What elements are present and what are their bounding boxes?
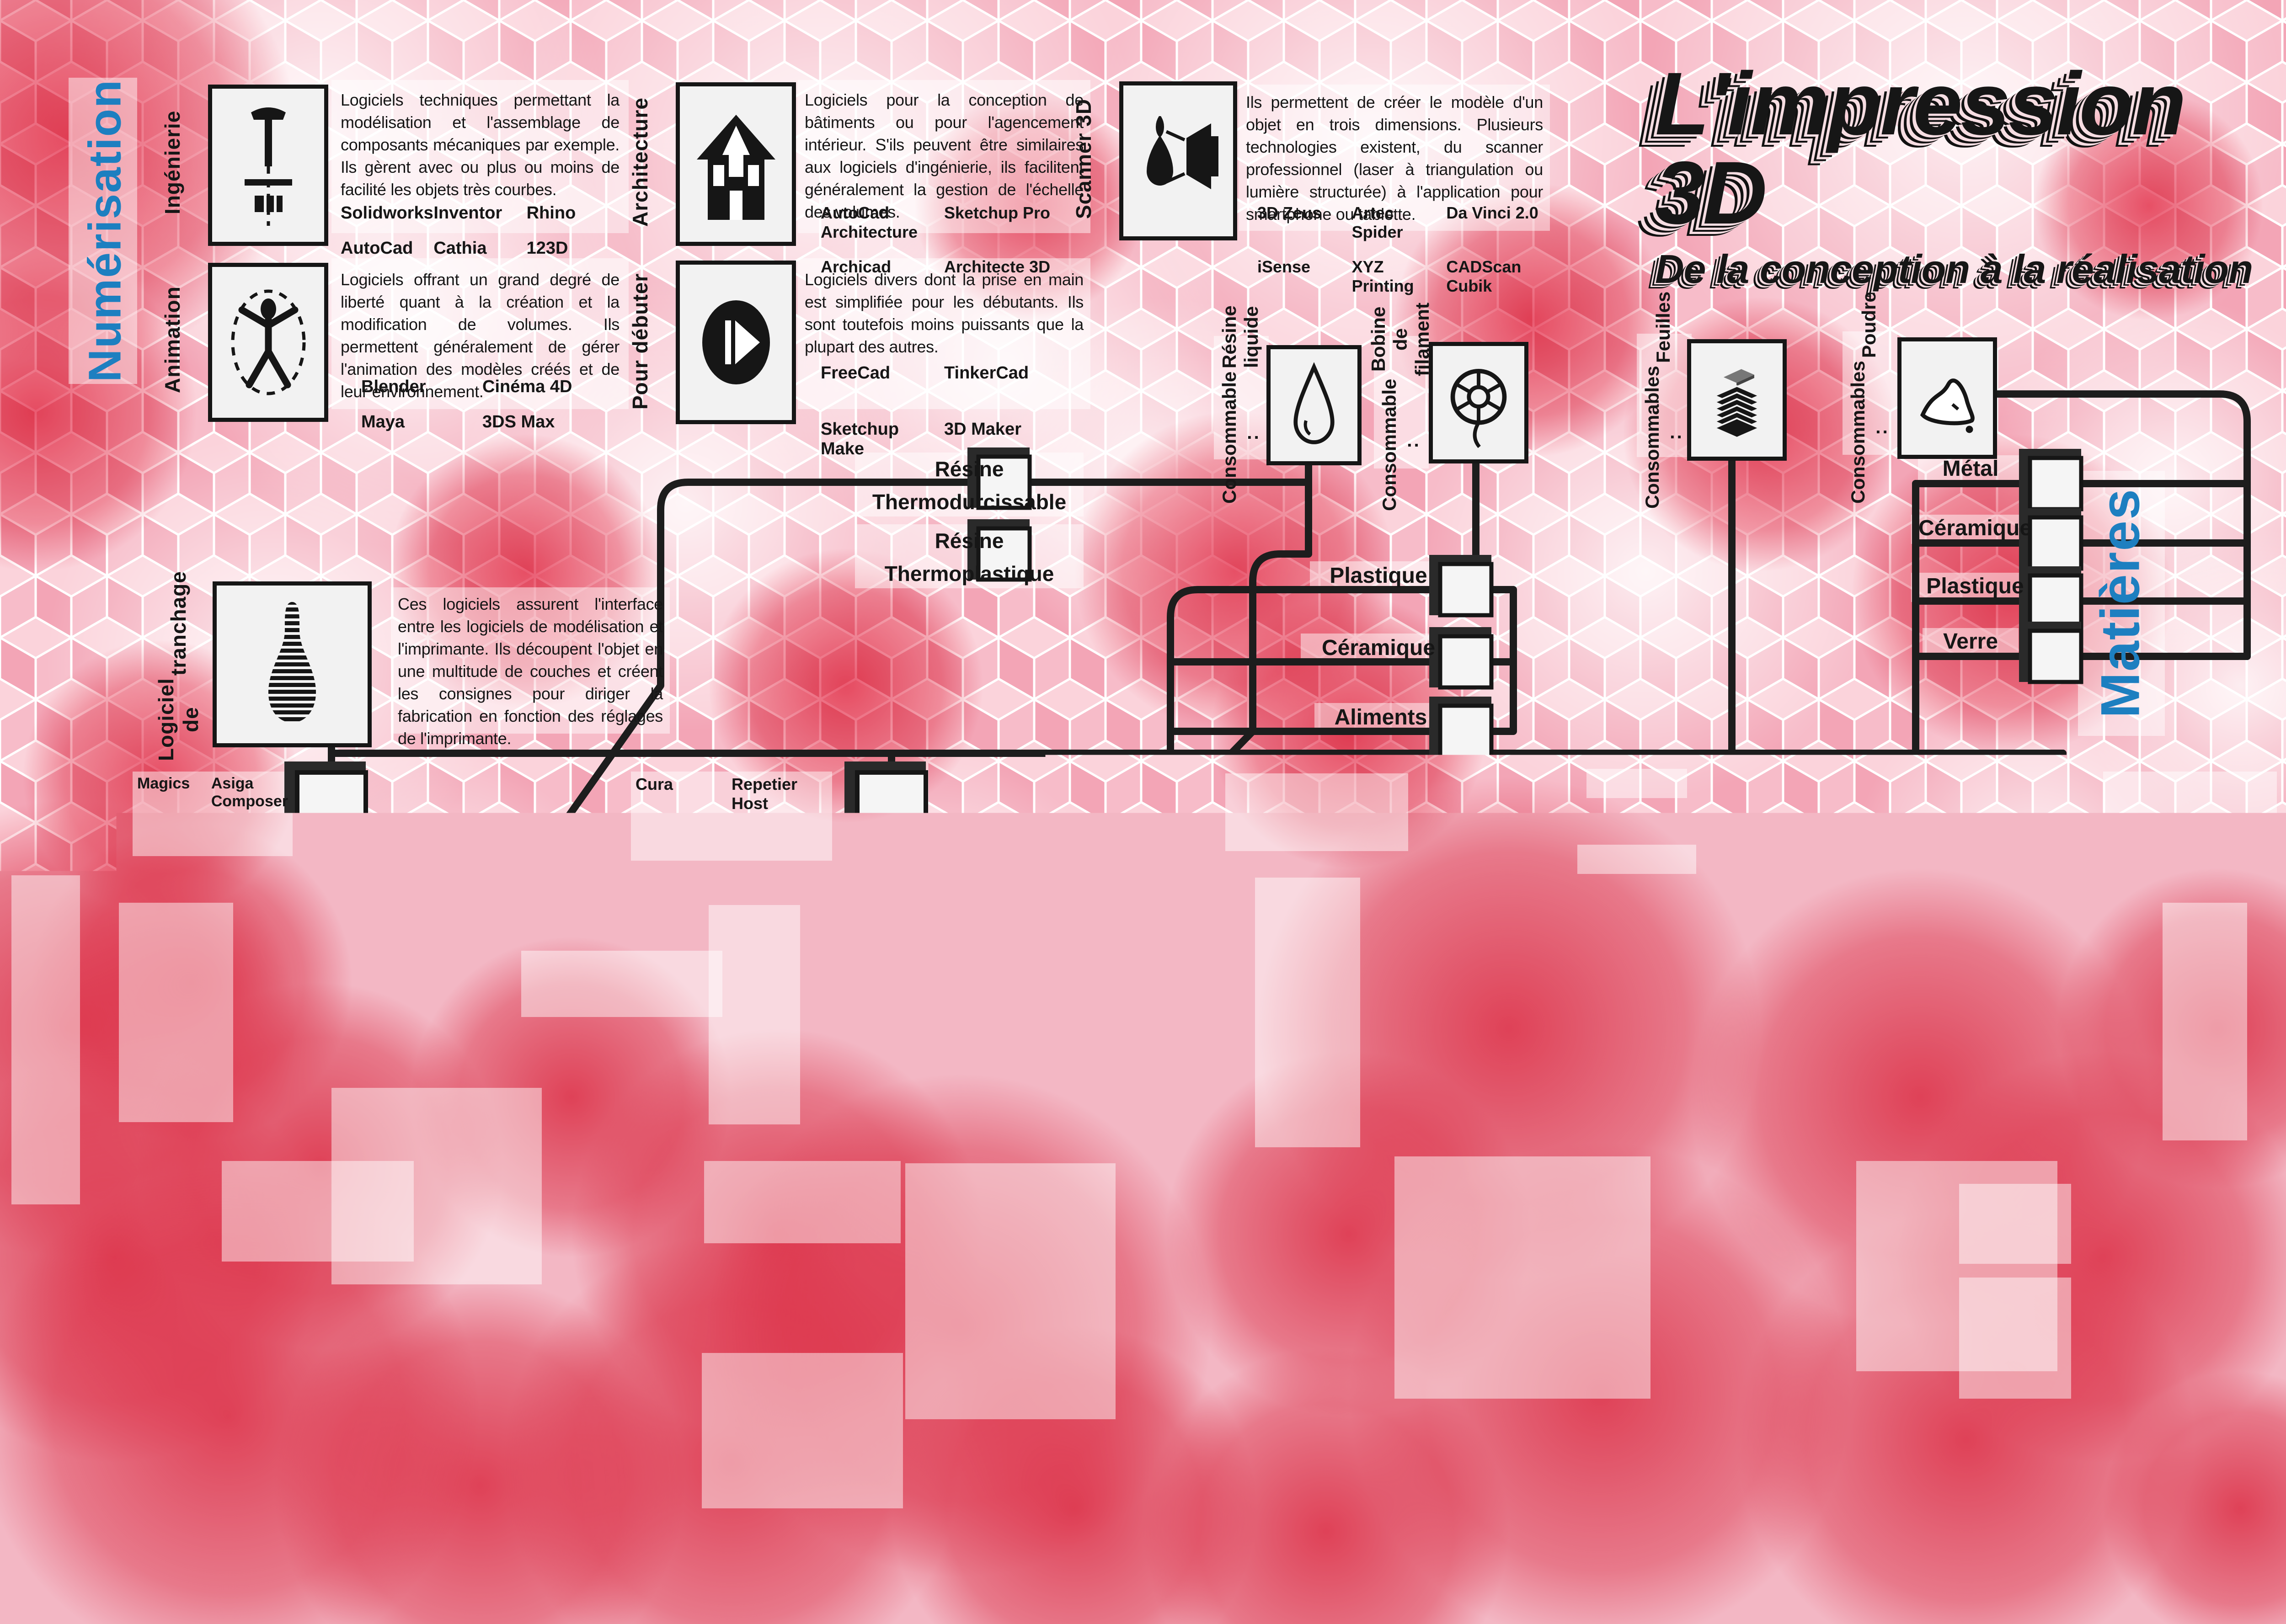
program: Sketchup Make bbox=[821, 420, 944, 459]
program: 123D bbox=[527, 239, 620, 258]
dmf-process-label: EXTRUSION bbox=[956, 1168, 1093, 1195]
svg-text:a²: a² bbox=[1828, 1376, 1840, 1392]
category-label-animation: Animation bbox=[158, 264, 187, 415]
ebeam-label: E-Beam bbox=[2121, 1287, 2149, 1387]
program: Da Vinci 2.0 bbox=[1446, 203, 1541, 242]
polyjet-label: Polyjet bbox=[137, 1163, 165, 1268]
dmf-description: L'objet est formé grâce à une buse se dé… bbox=[910, 1200, 1111, 1446]
usage-car-sla bbox=[135, 1319, 251, 1419]
car-icon bbox=[1974, 1421, 2055, 1490]
plane-icon bbox=[259, 1465, 341, 1533]
usage-chair-sla bbox=[300, 1311, 416, 1418]
category-label-architecture: Architecture bbox=[625, 85, 655, 240]
consumable-label-poudre: Consommables :Poudre bbox=[1844, 334, 1894, 462]
dmf-software: CuraRepetier Host ReplicatorGPronterface… bbox=[636, 775, 828, 880]
fsl-software: Magics Phenix processing Fichiers .stl, … bbox=[2108, 775, 2272, 873]
material-metal: Métal bbox=[1918, 456, 2023, 481]
feuilles-box bbox=[1687, 339, 1787, 461]
program: Artec Spider bbox=[1352, 203, 1447, 242]
material-plastique-lds: Plastique bbox=[1577, 846, 1696, 871]
ingenierie-programs: SolidworksInventorRhino AutoCadCathia123… bbox=[341, 203, 620, 258]
usage-flask-sla bbox=[359, 1454, 465, 1559]
program: XYZ Printing bbox=[1352, 257, 1447, 296]
program: Inventor bbox=[433, 203, 526, 223]
credits-line: Lucile LAMIRAND, Noemie POIREAU, Merve P… bbox=[1500, 1590, 2268, 1618]
program: AutoCad Architecture bbox=[821, 203, 944, 242]
section-label-technologies: Technologies bbox=[14, 878, 75, 1202]
material-plastique-mid: Plastique bbox=[1317, 563, 1440, 588]
sla-software: MagicsAsiga Composer PreFormMach3 Fichie… bbox=[137, 775, 288, 876]
animation-programs: BlenderCinéma 4D Maya3DS Max bbox=[361, 377, 604, 432]
consumable-label-filament: Consommable :Bobine de filament bbox=[1375, 338, 1426, 475]
play-icon bbox=[690, 274, 782, 411]
material-aliments-mid: Aliments bbox=[1319, 705, 1442, 730]
scanner3d-box bbox=[1119, 81, 1237, 240]
tools-icon bbox=[640, 1435, 717, 1503]
material-verre: Verre bbox=[1923, 629, 2019, 654]
bobine-filament-box bbox=[1429, 342, 1528, 463]
chair-icon bbox=[318, 1328, 398, 1401]
usage-house-lds bbox=[1394, 1433, 1510, 1535]
resine-liquide-box bbox=[1266, 345, 1362, 465]
material-papier: Papier bbox=[1586, 770, 1687, 795]
section-label-usages: Usages bbox=[1138, 1337, 1200, 1506]
category-label-pour-debuter: Pour débuter bbox=[625, 261, 655, 421]
engineering-icon bbox=[223, 97, 314, 234]
category-label-ingenierie: Ingénierie bbox=[158, 87, 187, 238]
poster-title-block: L'impression 3D De la conception à la ré… bbox=[1655, 59, 2263, 293]
house-icon bbox=[690, 96, 782, 233]
usage-chair-dmf bbox=[818, 1407, 925, 1515]
dmf-speed-cube: 70 mm/s bbox=[1070, 936, 1163, 1049]
fsl-label: FSL Frittage Sélectif par Laser bbox=[2165, 903, 2252, 1140]
program: Cathia bbox=[433, 239, 526, 258]
usage-flask-lds bbox=[1533, 1486, 1641, 1588]
powder-pile-icon bbox=[1913, 349, 1982, 447]
architecture-box bbox=[676, 82, 796, 246]
program: FreeCad bbox=[821, 363, 944, 383]
program: 3D Zeus bbox=[1257, 203, 1352, 242]
dmf-label: DMF Dépôt de Matière Fondue bbox=[711, 907, 802, 1118]
scanner3d-programs: 3D ZeusArtec SpiderDa Vinci 2.0 iSenseXY… bbox=[1257, 203, 1541, 296]
flask-icon bbox=[374, 1470, 451, 1543]
fsl-layer-cube: 0,2 mm bbox=[1842, 1042, 1930, 1142]
polyjet-text: La résine est projetée en goutelettes su… bbox=[229, 1166, 409, 1252]
flask-icon bbox=[864, 1519, 937, 1588]
usage-flask-dmf bbox=[848, 1504, 954, 1603]
chair-icon bbox=[833, 1426, 910, 1496]
program: Rhino bbox=[527, 203, 620, 223]
program: CADScan Cubik bbox=[1446, 257, 1541, 296]
tranchage-description: Ces logiciels assurent l'interface entre… bbox=[398, 593, 663, 750]
usage-retort-fsl: a² bbox=[1778, 1323, 1887, 1427]
lds-speed-cube: ? bbox=[1645, 1015, 1733, 1124]
fsl-volume-cube: 2400mmx 2200mmx 2400mm bbox=[1935, 1037, 2060, 1168]
pour-debuter-description: Logiciels divers dont la prise en main e… bbox=[805, 269, 1084, 358]
program: Cinéma 4D bbox=[482, 377, 604, 397]
program: TinkerCad bbox=[944, 363, 1068, 383]
architecture-programs: AutoCad ArchitectureSketchup Pro Archica… bbox=[821, 203, 1068, 277]
house-small-icon bbox=[719, 1510, 792, 1574]
drop-icon bbox=[1282, 357, 1346, 453]
sla-speed-cube: 25 mm/s bbox=[375, 948, 470, 1060]
section-label-matieres: Matières bbox=[2080, 473, 2160, 734]
sliced-vase-icon bbox=[233, 594, 352, 735]
consumable-label-feuilles: Consommables :Feuilles bbox=[1638, 336, 1688, 464]
chair-icon bbox=[1525, 1401, 1602, 1472]
pour-debuter-box bbox=[676, 261, 796, 424]
material-resine-thermodurcissable: RésineThermodurcissable bbox=[860, 456, 1079, 515]
usage-house-dmf bbox=[704, 1495, 808, 1590]
pour-debuter-programs: FreeCadTinkerCad Sketchup Make3D Maker bbox=[821, 363, 1068, 459]
page-subtitle: De la conception à la réalisation bbox=[1655, 246, 2263, 293]
lds-machine-icon bbox=[1335, 871, 1655, 1099]
retort-flask-icon: a² bbox=[1794, 1340, 1872, 1411]
program: 3D Maker bbox=[944, 420, 1068, 459]
frittage-laser-text: Variante spécifique pour l'impression de… bbox=[1962, 1187, 2068, 1267]
category-label-scanner3d: Scanner 3D bbox=[1069, 83, 1098, 234]
program: Sketchup Pro bbox=[944, 203, 1068, 242]
program: AutoCad bbox=[341, 239, 433, 258]
ingenierie-box bbox=[208, 85, 328, 246]
sheet-stack-icon bbox=[1703, 351, 1771, 449]
animation-figure-icon bbox=[223, 276, 314, 409]
poster-canvas: L'impression 3D De la conception à la ré… bbox=[0, 0, 2286, 1624]
program: iSense bbox=[1257, 257, 1352, 296]
tranchage-box bbox=[213, 581, 372, 747]
program: Solidworks bbox=[341, 203, 433, 223]
tranchage-label: Logiciel de tranchage bbox=[151, 591, 206, 741]
material-plastique-right: Plastique bbox=[1911, 574, 2039, 599]
consumable-label-resine: Consommable :Résine liquide bbox=[1215, 341, 1266, 469]
usage-car-fsl bbox=[1957, 1404, 2072, 1507]
ingenierie-description: Logiciels techniques permettant la modél… bbox=[341, 89, 620, 201]
stylo3d-label: Stylo 3D bbox=[609, 1168, 636, 1268]
car-icon bbox=[153, 1335, 233, 1403]
usage-chair-lds bbox=[1510, 1384, 1618, 1488]
flask-icon bbox=[1550, 1502, 1625, 1572]
usage-plane-sla bbox=[239, 1448, 360, 1550]
scanner-icon bbox=[1132, 92, 1224, 229]
section-label-numerisation: Numérisation bbox=[75, 80, 135, 382]
program: 3DS Max bbox=[482, 412, 604, 432]
house-small-icon bbox=[1412, 1450, 1493, 1518]
lds-software: MCor SliceIt Fichiers .stl, .obj, .vrml bbox=[1230, 777, 1404, 831]
material-ceramique-right: Céramique bbox=[1911, 516, 2039, 541]
lds-files: Fichiers .stl, .obj, .vrml bbox=[1230, 805, 1404, 831]
program: Maya bbox=[361, 412, 482, 432]
program: Blender bbox=[361, 377, 482, 397]
poudre-box bbox=[1897, 337, 1997, 459]
filament-spool-icon bbox=[1444, 354, 1513, 452]
material-ceramique-mid: Céramique bbox=[1308, 635, 1449, 660]
material-resine-thermoplastique: RésineThermoplastique bbox=[860, 528, 1079, 587]
frittage-laser-label: Frittage LaserDirect de Métal bbox=[2121, 1159, 2181, 1287]
stylo3d-text: La matière fondue refroidi rapidement po… bbox=[710, 1166, 897, 1231]
lds-layer-cube: 0,1 mm bbox=[1237, 1028, 1327, 1130]
dmf-layer-cube: 0,02 mm bbox=[1043, 1054, 1134, 1152]
lds-process-label: DECOUPE bbox=[1399, 1162, 1513, 1188]
animation-box bbox=[208, 263, 328, 422]
page-title: L'impression 3D bbox=[1655, 59, 2263, 238]
fsl-files: Fichiers .stl, .iges, .step bbox=[2108, 830, 2272, 873]
sla-process-label: PHOTOPOLYMERISATION bbox=[338, 1093, 535, 1120]
sla-note: Vitesse moyenne, précision et volume max… bbox=[526, 958, 718, 1028]
